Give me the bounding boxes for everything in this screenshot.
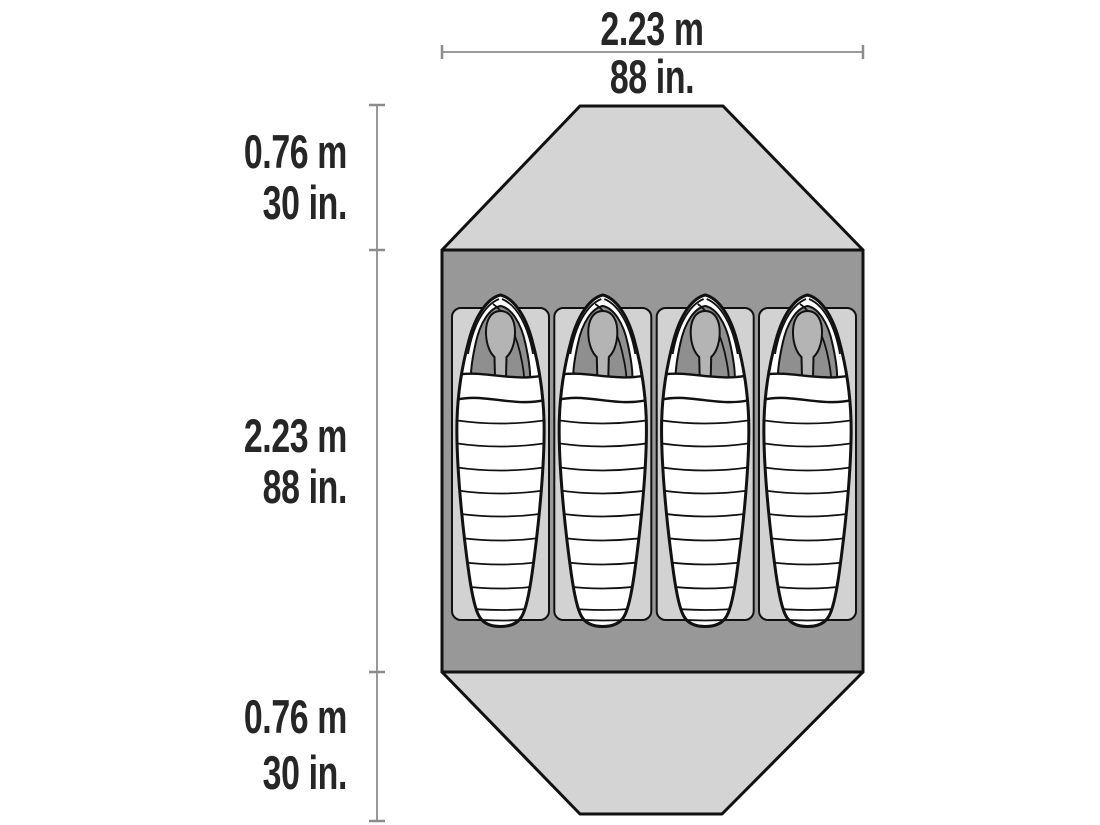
top-vestibule-label-metric: 0.76 m: [244, 126, 347, 179]
tent-floorplan-diagram: 2.23 m 88 in. 0.76 m 30 in. 2.23 m 88 in…: [0, 0, 1100, 825]
width-dimension: 2.23 m 88 in.: [442, 3, 863, 104]
width-label-metric: 2.23 m: [600, 3, 703, 56]
diagram-canvas: 2.23 m 88 in. 0.76 m 30 in. 2.23 m 88 in…: [0, 0, 1100, 825]
sleeper-unit-3: [657, 295, 754, 627]
floor-label-metric: 2.23 m: [244, 410, 347, 463]
bottom-vestibule-label-metric: 0.76 m: [244, 691, 347, 744]
bottom-vestibule-shape: [442, 672, 863, 814]
top-vestibule-shape: [442, 106, 863, 250]
top-vestibule-label-imperial: 30 in.: [263, 177, 347, 230]
sleeper-unit-1: [452, 295, 549, 627]
bottom-vestibule-label-imperial: 30 in.: [263, 747, 347, 800]
sleeper-unit-2: [554, 295, 651, 627]
tent: [442, 106, 863, 814]
sleeper-unit-4: [759, 295, 856, 627]
width-label-imperial: 88 in.: [610, 51, 694, 104]
height-dimension: 0.76 m 30 in. 2.23 m 88 in. 0.76 m 30 in…: [244, 105, 385, 821]
floor-label-imperial: 88 in.: [263, 461, 347, 514]
